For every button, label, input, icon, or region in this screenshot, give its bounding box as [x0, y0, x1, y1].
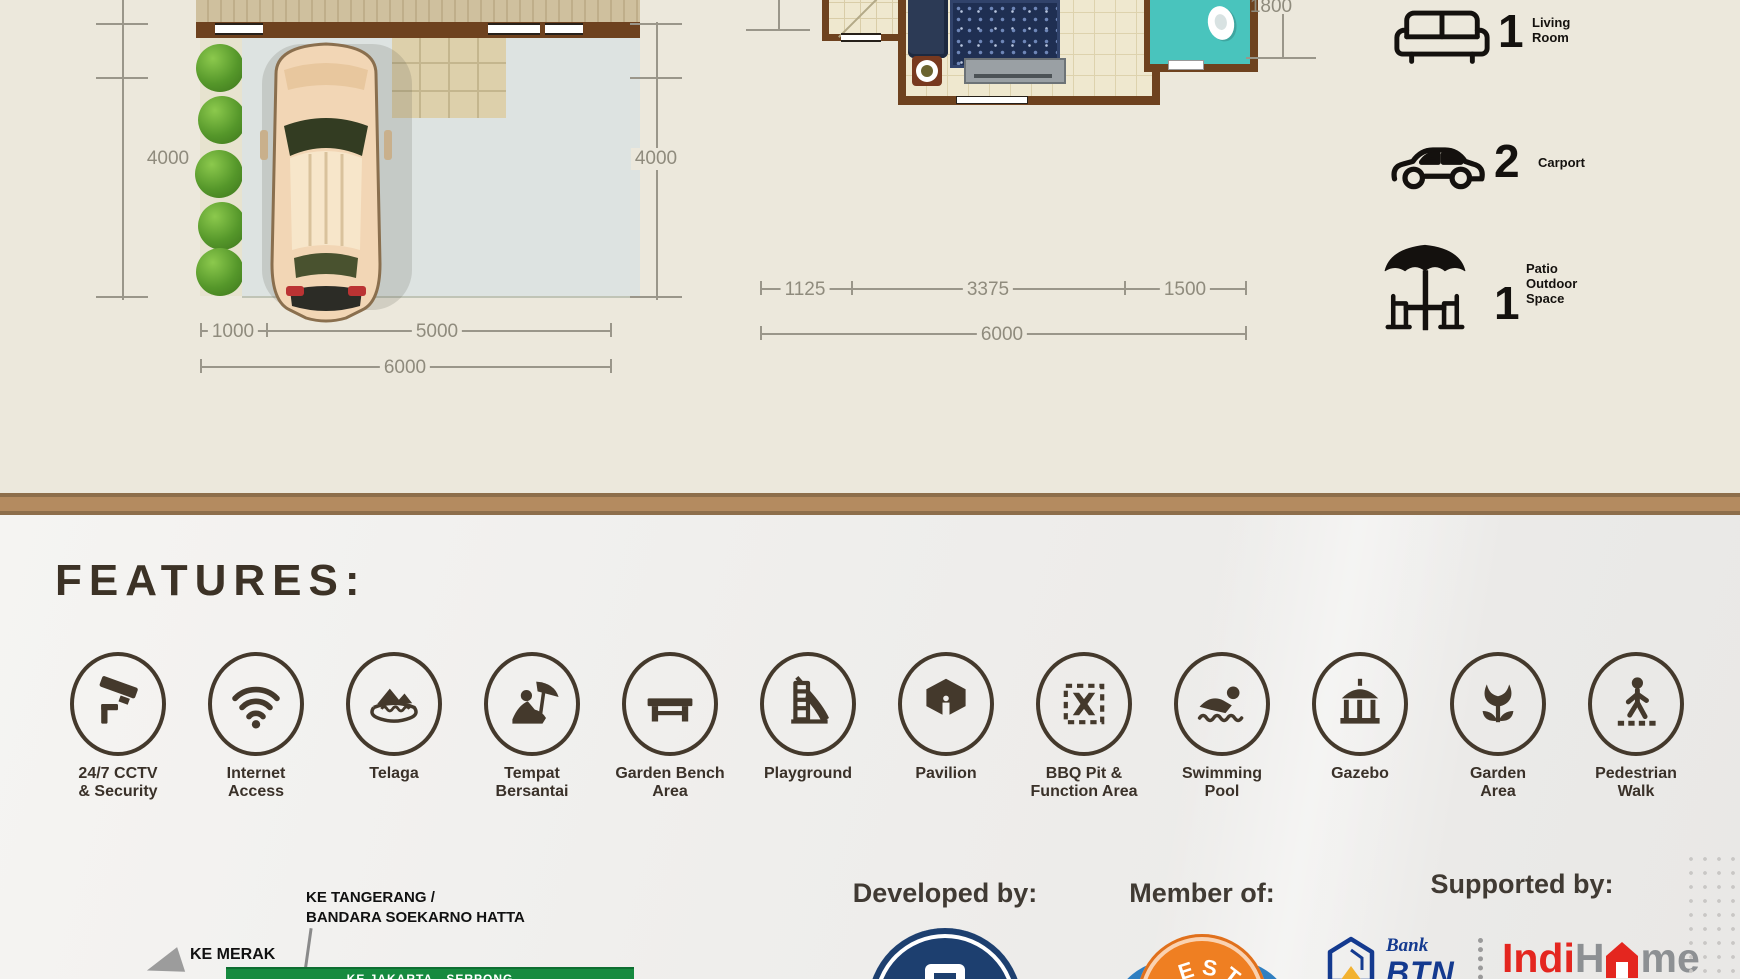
feature-label: Telaga: [325, 765, 463, 783]
feature-label: Playground: [739, 765, 877, 783]
feature-internet: Internet Access: [187, 652, 325, 802]
feature-label: Garden Area: [1429, 765, 1567, 802]
feature-tempat-bersantai: Tempat Bersantai: [463, 652, 601, 802]
feature-ring: [1036, 652, 1132, 756]
feature-ring: [484, 652, 580, 756]
car-top-view: [250, 34, 402, 326]
feature-ring: [1588, 652, 1684, 756]
dim-tick: [200, 359, 202, 373]
dim-label: 4000: [143, 148, 193, 170]
dim-label: 5000: [412, 321, 462, 343]
dim-tick: [851, 281, 853, 295]
bush: [198, 202, 246, 250]
feature-ring: [208, 652, 304, 756]
feature-label: Pavilion: [877, 765, 1015, 783]
dot-pattern: [1684, 852, 1740, 979]
legend-label: Carport: [1538, 156, 1585, 171]
car-icon: [1382, 130, 1496, 198]
dim-label: 1500: [1160, 279, 1210, 301]
bathroom: [1144, 0, 1258, 72]
rei-badge: ALEST: [1118, 934, 1286, 979]
map-label-merak: KE MERAK: [190, 945, 275, 966]
slide-icon: [773, 669, 843, 739]
feature-ring: [760, 652, 856, 756]
legend-count: 1: [1498, 4, 1524, 58]
dim-tick: [96, 296, 148, 298]
feature-label: Internet Access: [187, 765, 325, 802]
bush: [198, 96, 246, 144]
feature-ring: [346, 652, 442, 756]
feature-bbq: BBQ Pit & Function Area: [1015, 652, 1153, 802]
dim-tick: [1245, 326, 1247, 340]
entry-porch: [822, 0, 905, 41]
window: [488, 23, 540, 35]
supported-by-heading: Supported by:: [1431, 869, 1614, 900]
feature-ring: [70, 652, 166, 756]
bbq-icon: [1049, 669, 1119, 739]
carport-canopy: [196, 0, 640, 22]
pedestrian-icon: [1601, 669, 1671, 739]
feature-ring: [1174, 652, 1270, 756]
section-divider: [0, 493, 1740, 515]
btn-bank-text: Bank: [1386, 936, 1455, 955]
legend-label: Patio Outdoor Space: [1526, 262, 1577, 307]
wifi-icon: [221, 669, 291, 739]
feature-gazebo: Gazebo: [1291, 652, 1429, 783]
feature-label: BBQ Pit & Function Area: [1015, 765, 1153, 802]
developer-logo-building: [925, 964, 965, 979]
dim-tick: [200, 323, 202, 337]
dim-line: [1282, 14, 1284, 58]
feature-label: 24/7 CCTV & Security: [49, 765, 187, 802]
lounge-icon: [497, 669, 567, 739]
feature-label: Swimming Pool: [1153, 765, 1291, 802]
dim-line: [778, 0, 780, 30]
dim-tick: [1246, 57, 1316, 59]
lake-icon: [359, 669, 429, 739]
rei-badge-arc-text: ALEST: [1137, 934, 1267, 979]
dim-label: 6000: [977, 324, 1027, 346]
dim-tick: [630, 296, 682, 298]
indihome-house-icon: [1605, 940, 1639, 979]
dim-label: 1000: [208, 321, 258, 343]
patio-umbrella-icon: [1366, 238, 1484, 338]
property-infographic: 4000 4000 1000 5000 6000: [0, 0, 1740, 979]
feature-garden-bench: Garden Bench Area: [601, 652, 739, 802]
feature-swimming-pool: Swimming Pool: [1153, 652, 1291, 802]
dim-label: 6000: [380, 357, 430, 379]
dim-line: [122, 0, 124, 300]
indihome-logo: Indi H me: [1502, 938, 1700, 979]
plant-pot: [912, 56, 942, 86]
feature-telaga: Telaga: [325, 652, 463, 783]
feature-cctv: 24/7 CCTV & Security: [49, 652, 187, 802]
feature-label: Tempat Bersantai: [463, 765, 601, 802]
dim-tick: [610, 359, 612, 373]
flower-icon: [1463, 669, 1533, 739]
dim-label: 1800: [1246, 0, 1296, 18]
logo-divider: [1478, 938, 1483, 979]
dim-tick: [1245, 281, 1247, 295]
feature-garden-area: Garden Area: [1429, 652, 1567, 802]
gazebo-icon: [1325, 669, 1395, 739]
feature-ring: [1312, 652, 1408, 756]
dim-tick: [760, 326, 762, 340]
legend-label: Living Room: [1532, 16, 1570, 46]
floorplan-section: 4000 4000 1000 5000 6000: [0, 0, 1740, 493]
dim-label: 1125: [781, 279, 830, 301]
bench-icon: [635, 669, 705, 739]
pavilion-icon: [911, 669, 981, 739]
toilet: [1205, 4, 1238, 43]
developed-by-heading: Developed by:: [853, 878, 1038, 909]
feature-label: Pedestrian Walk: [1567, 765, 1705, 802]
legend-count: 1: [1494, 276, 1520, 330]
btn-house-icon: [1326, 936, 1376, 979]
window: [956, 96, 1028, 104]
feature-label: Garden Bench Area: [601, 765, 739, 802]
dim-tick: [630, 23, 682, 25]
garden-strip: [200, 38, 242, 296]
map-label-tangerang: KE TANGERANG / BANDARA SOEKARNO HATTA: [306, 888, 525, 927]
sink: [1168, 60, 1204, 70]
swimmer-icon: [1187, 669, 1257, 739]
dim-line: [200, 330, 610, 332]
bush: [196, 44, 244, 92]
btn-name-text: BTN: [1386, 957, 1455, 979]
dim-tick: [610, 323, 612, 337]
btn-wordmark: Bank BTN: [1386, 936, 1455, 979]
feature-label: Gazebo: [1291, 765, 1429, 783]
member-of-heading: Member of:: [1129, 878, 1275, 909]
svg-text:ALEST: ALEST: [1141, 954, 1249, 979]
legend-count: 2: [1494, 134, 1520, 188]
toll-sign: KE JAKARTA - SERPONG: [226, 967, 634, 979]
cctv-icon: [83, 669, 153, 739]
dim-label: 3375: [963, 279, 1013, 301]
dim-label: 4000: [631, 148, 681, 170]
indihome-indi-text: Indi: [1502, 938, 1575, 979]
feature-playground: Playground: [739, 652, 877, 783]
window: [545, 23, 583, 35]
feature-pedestrian-walk: Pedestrian Walk: [1567, 652, 1705, 802]
feature-ring: [898, 652, 994, 756]
dim-tick: [96, 77, 148, 79]
feature-ring: [1450, 652, 1546, 756]
dim-tick: [746, 29, 810, 31]
dim-tick: [96, 23, 148, 25]
feature-ring: [622, 652, 718, 756]
window: [841, 33, 881, 42]
bush: [195, 150, 243, 198]
dim-tick: [630, 77, 682, 79]
bush: [196, 248, 244, 296]
feature-pavilion: Pavilion: [877, 652, 1015, 783]
dim-tick: [760, 281, 762, 295]
indihome-h-text: H: [1575, 938, 1605, 979]
living-room: [898, 0, 1160, 105]
dim-tick: [1124, 281, 1126, 295]
dim-tick: [266, 323, 268, 337]
sofa-icon: [1386, 4, 1498, 68]
bank-btn-logo: Bank BTN: [1326, 936, 1455, 979]
sofa-plan: [908, 0, 948, 58]
tv-console: [964, 58, 1066, 84]
features-heading: FEATURES:: [55, 556, 367, 606]
